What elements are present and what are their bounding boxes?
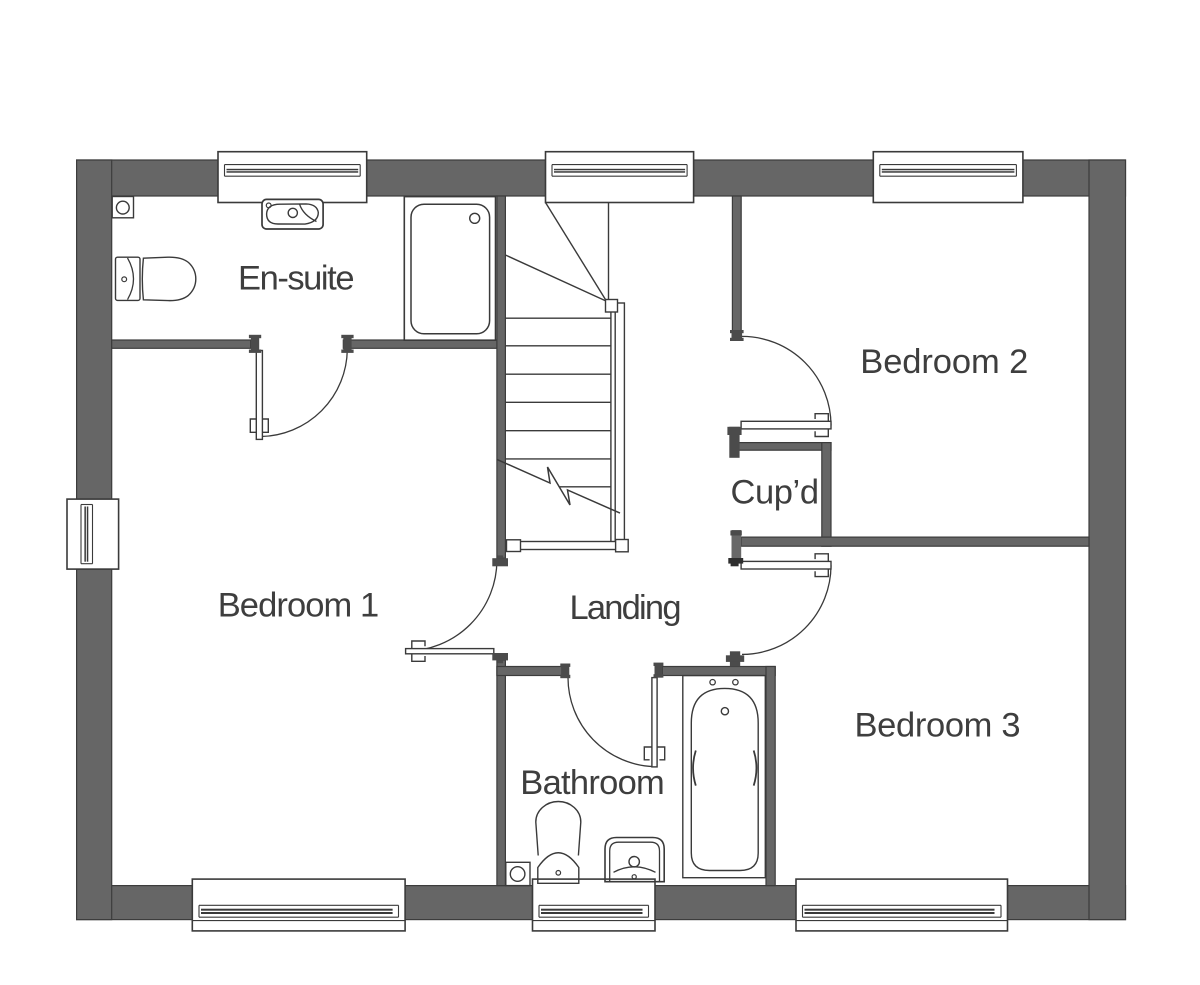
svg-text:Bedroom 1: Bedroom 1: [218, 586, 380, 624]
svg-text:Bedroom 3: Bedroom 3: [855, 706, 1021, 744]
svg-text:En-suite: En-suite: [238, 259, 355, 297]
svg-text:Bedroom 2: Bedroom 2: [860, 343, 1028, 381]
svg-text:Cup’d: Cup’d: [731, 474, 820, 512]
svg-text:Landing: Landing: [570, 589, 682, 627]
svg-text:Bathroom: Bathroom: [520, 764, 665, 802]
